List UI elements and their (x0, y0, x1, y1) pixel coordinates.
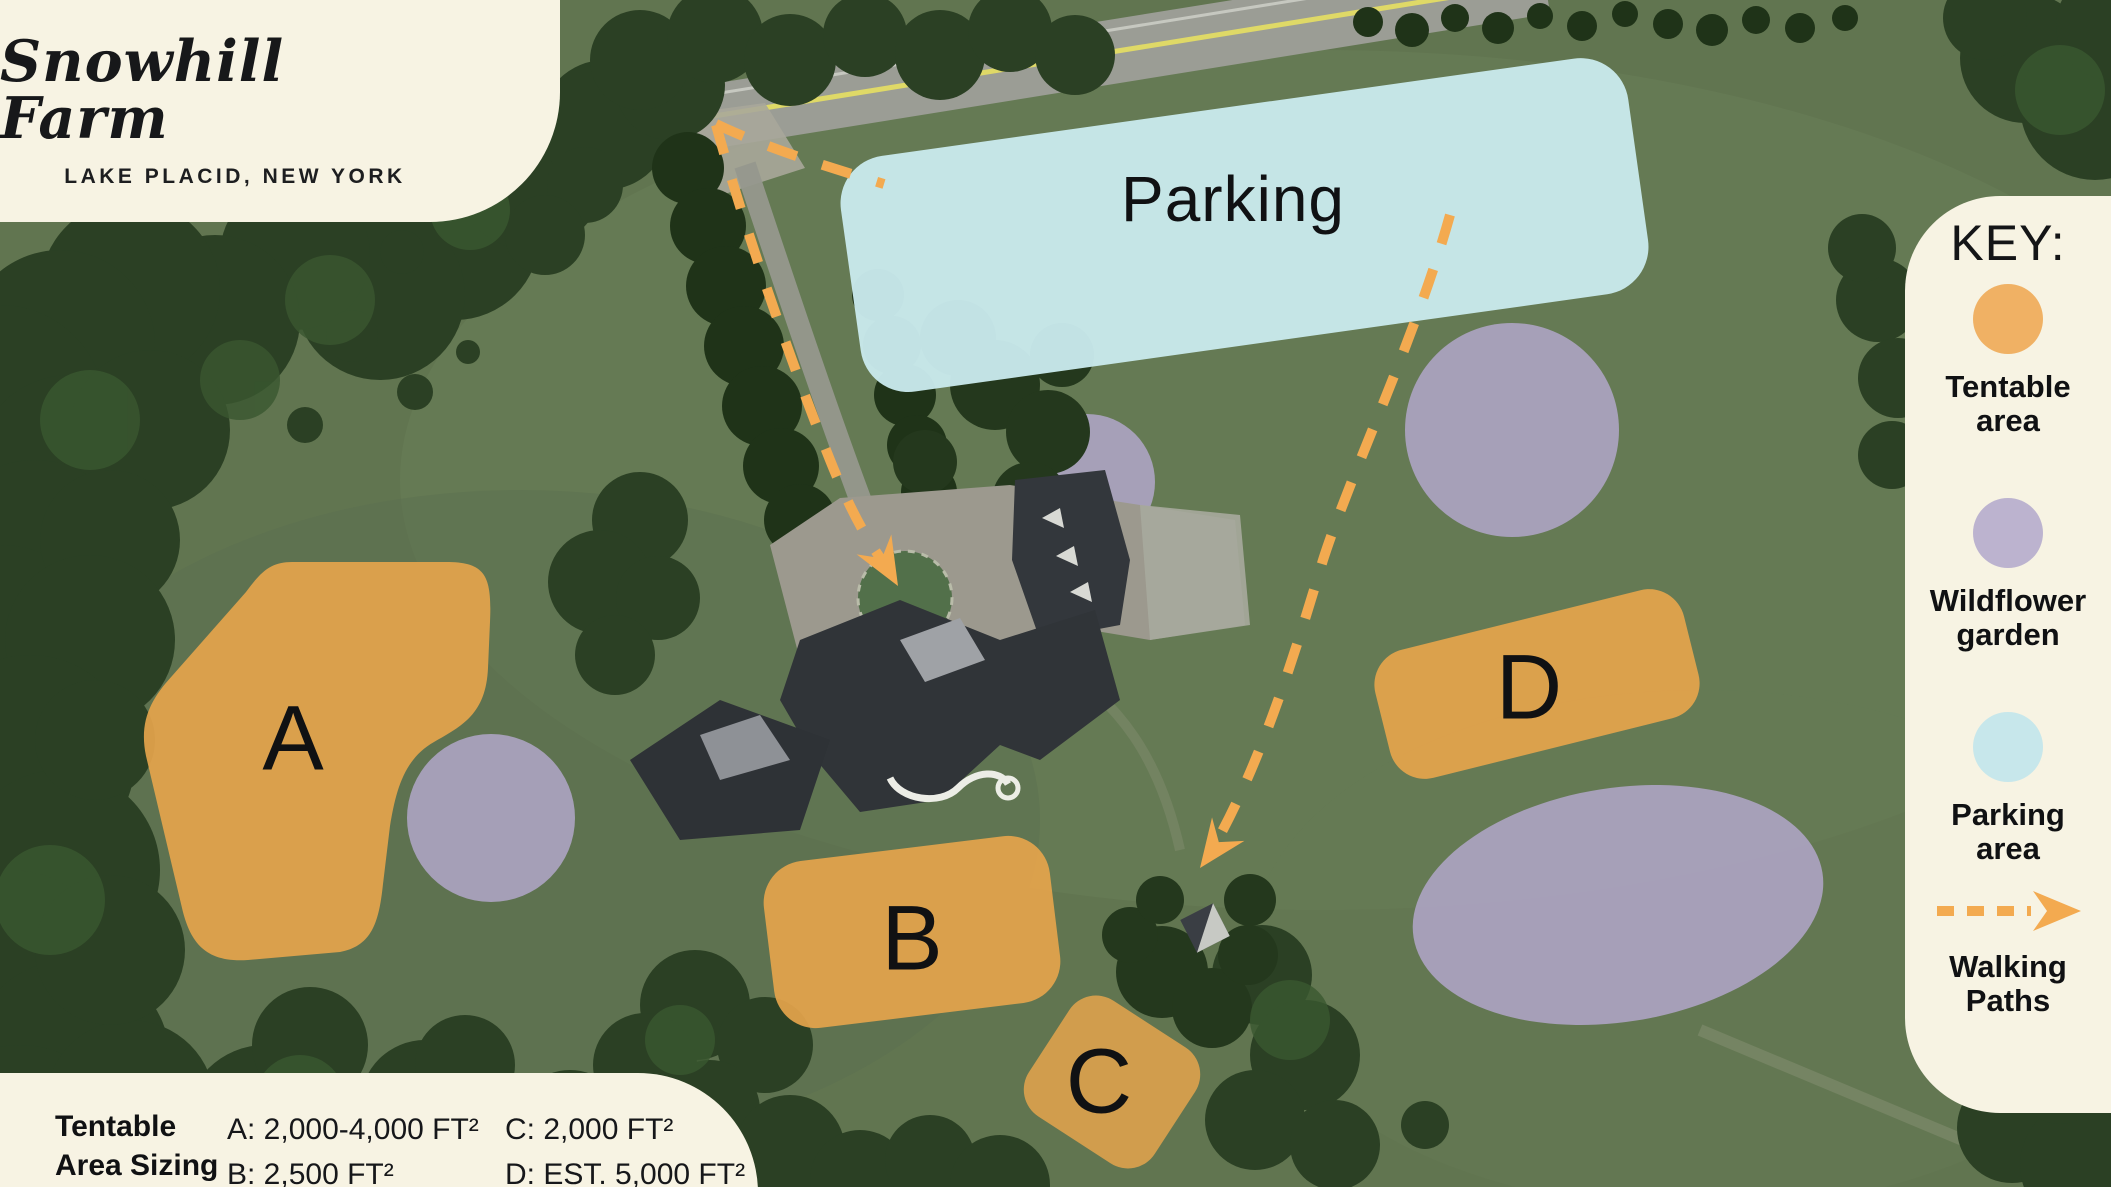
key-panel: KEY: Tentable area Wildflower garden Par… (1905, 196, 2111, 1113)
parking-swatch-icon (1973, 712, 2043, 782)
sizing-column-2: C: 2,000 FT² D: EST. 5,000 FT² (505, 1107, 745, 1187)
logo-panel: Snowhill Farm LAKE PLACID, NEW YORK (0, 0, 560, 222)
parking-label: Parking (1121, 162, 1345, 236)
farm-location: LAKE PLACID, NEW YORK (64, 165, 405, 189)
farm-logo: Snowhill Farm (0, 33, 470, 147)
walking-path-arrow-icon (1933, 888, 2083, 934)
key-label-parking: Parking area (1923, 798, 2093, 866)
key-label-wildflower: Wildflower garden (1923, 584, 2093, 652)
area-label-b: B (881, 887, 942, 992)
sizing-b: B: 2,500 FT² (227, 1152, 505, 1187)
key-item-walking: Walking Paths (1905, 884, 2111, 1018)
tentable-swatch-icon (1973, 284, 2043, 354)
area-label-d: D (1496, 636, 1562, 741)
sizing-panel: Tentable Area Sizing A: 2,000-4,000 FT² … (0, 1073, 758, 1187)
wildflower-swatch-icon (1973, 498, 2043, 568)
key-title: KEY: (1905, 214, 2111, 272)
area-label-a: A (262, 687, 323, 792)
sizing-column-1: A: 2,000-4,000 FT² B: 2,500 FT² (227, 1107, 505, 1187)
sizing-title: Tentable Area Sizing (55, 1107, 227, 1187)
key-label-walking: Walking Paths (1923, 950, 2093, 1018)
wildflower-garden-north (1405, 323, 1619, 537)
key-item-wildflower: Wildflower garden (1905, 498, 2111, 652)
key-label-tentable: Tentable area (1923, 370, 2093, 438)
sizing-d: D: EST. 5,000 FT² (505, 1152, 745, 1187)
wildflower-garden-a (407, 734, 575, 902)
key-item-tentable: Tentable area (1905, 284, 2111, 438)
sizing-c: C: 2,000 FT² (505, 1107, 745, 1152)
key-item-parking: Parking area (1905, 712, 2111, 866)
site-map: Parking A B C D Snowhill Farm LAKE PLACI… (0, 0, 2111, 1187)
sizing-a: A: 2,000-4,000 FT² (227, 1107, 505, 1152)
area-label-c: C (1066, 1030, 1132, 1135)
